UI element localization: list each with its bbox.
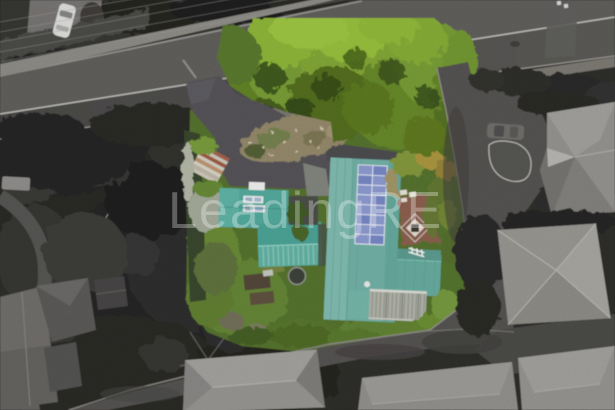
svg-text:LeadingRE: LeadingRE	[168, 182, 443, 240]
